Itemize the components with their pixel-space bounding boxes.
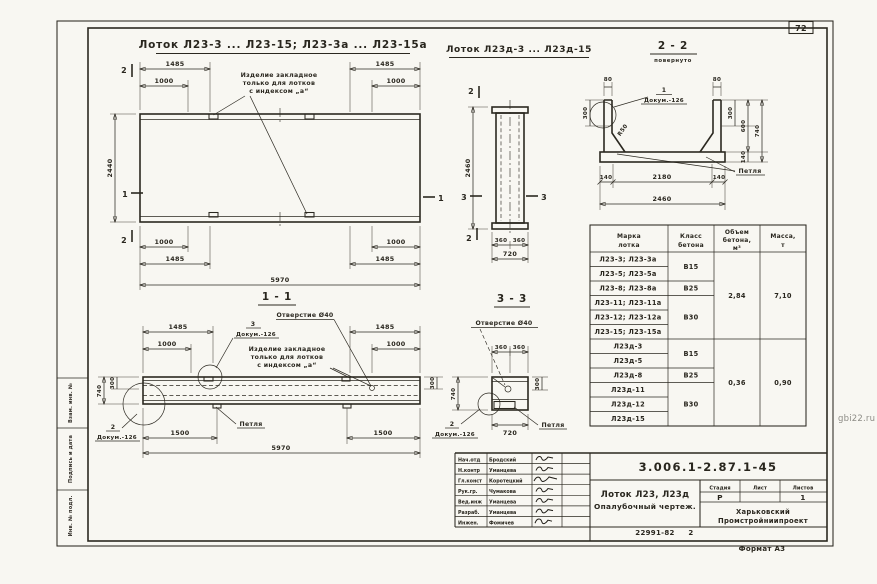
- table-class-cell: В15: [683, 350, 698, 358]
- dim-1000-br: 1000: [387, 238, 406, 246]
- dim-5970-plan: 5970: [271, 276, 290, 284]
- detail-callout-2-s11: 2: [111, 424, 116, 431]
- table-row-mark: Л23-12; Л23-12а: [594, 314, 661, 322]
- dim-300-s22-right: 300: [728, 107, 734, 120]
- sheets-count-value: 1: [800, 493, 805, 502]
- doc-title-line1: Лоток Л23, Л23д: [601, 490, 690, 500]
- section-3-3-title: 3 - 3: [497, 293, 527, 305]
- table-row-mark: Л23-5; Л23-5а: [599, 270, 656, 278]
- table-row-mark: Л23д-11: [611, 386, 645, 394]
- table-row-mark: Л23д-3: [613, 343, 642, 351]
- table-header-mass-1: Масса,: [770, 233, 795, 240]
- dim-1000-tl: 1000: [155, 77, 174, 85]
- dim-80-right: 80: [713, 77, 721, 83]
- petlya-label-s22: Петля: [739, 168, 762, 175]
- section-mark-2-end-bottom: 2: [466, 234, 472, 243]
- dim-360-s33-b: 360: [513, 345, 526, 351]
- dim-1000-tr: 1000: [387, 77, 406, 85]
- org-name-line1: Харьковский: [736, 508, 790, 516]
- dim-1500-l: 1500: [171, 429, 190, 437]
- petlya-label-s33: Петля: [542, 422, 565, 429]
- embed-note-line3: с индексом „а“: [249, 88, 308, 95]
- dim-2460-s22: 2460: [653, 195, 672, 203]
- table-row-mark: Л23-15; Л23-15а: [594, 328, 661, 336]
- dim-140-s22-br: 140: [713, 175, 726, 181]
- embed-note-s11-line2: только для лотков: [251, 354, 323, 361]
- table-mass-cell: 7,10: [774, 292, 792, 300]
- table-header-class-2: бетона: [678, 242, 704, 249]
- dim-1485-s11-r: 1485: [376, 323, 395, 331]
- signer-name: Фомичев: [489, 521, 514, 527]
- section-1-1-title: 1 - 1: [262, 291, 292, 303]
- dim-1500-r: 1500: [374, 429, 393, 437]
- doc-title-line2: Опалубочный чертеж.: [594, 502, 696, 511]
- page-number: 72: [795, 24, 807, 33]
- dim-360-a: 360: [495, 238, 508, 244]
- dim-2440: 2440: [106, 158, 114, 177]
- section-mark-2-bottom: 2: [121, 236, 127, 245]
- detail-2-doc-s33: Докум.-126: [435, 432, 475, 438]
- table-row-mark: Л23-3; Л23-3а: [599, 256, 656, 264]
- signer-name: Бродский: [489, 456, 516, 463]
- table-header-mark-1: Марка: [617, 233, 641, 240]
- table-header-mark-2: лотка: [618, 242, 640, 249]
- table-header-vol-3: м³: [733, 245, 741, 252]
- section-1-1: 1 - 1 Отверстие Ø40 3 Докум.-126 Изделие…: [95, 291, 443, 458]
- stage-label: Стадия: [709, 486, 730, 492]
- signer-name: Коротецкий: [489, 477, 523, 484]
- embed-note-line2: только для лотков: [243, 80, 315, 87]
- signer-role: Разраб.: [458, 509, 480, 516]
- dim-1485-s11-l: 1485: [169, 323, 188, 331]
- inventory-number: 22991-82: [635, 529, 674, 537]
- hole-label-s11: Отверстие Ø40: [276, 311, 333, 319]
- embed-note-s11-line3: с индексом „а“: [257, 362, 316, 369]
- table-header-vol-1: Объем: [725, 229, 749, 236]
- stage-value: Р: [717, 493, 723, 502]
- dim-1000-s11-r: 1000: [387, 340, 406, 348]
- dim-360-b: 360: [513, 238, 526, 244]
- table-row-mark: Л23д-15: [611, 415, 645, 423]
- signer-name: Уманцева: [489, 468, 516, 474]
- title-block: 3.006.1-2.87.1-45 Лоток Л23, Л23д Опалуб…: [455, 453, 827, 553]
- plan-d-title: Лоток Л23д-3 ... Л23д-15: [446, 45, 592, 55]
- dim-300-s11-r: 300: [430, 377, 436, 390]
- section-3-3: 3 - 3 Отверстие Ø40 360 360 740 300 720 …: [432, 293, 567, 438]
- table-volume-cell: 2,84: [728, 292, 746, 300]
- spec-table: Марка лотка Класс бетона Объем бетона, м…: [590, 225, 806, 426]
- table-header-mass-2: т: [781, 242, 785, 249]
- table-row-mark: Л23д-5: [613, 357, 642, 365]
- side-stamp: Взам. инв. № Подпись и дата Инв. № подл.: [68, 383, 74, 537]
- dim-740-s22: 740: [755, 125, 761, 138]
- embed-note-line1: Изделие закладное: [241, 72, 318, 79]
- section-mark-1-left: 1: [122, 190, 128, 199]
- section-2-2-subtitle: повернуто: [654, 58, 692, 64]
- dim-140-s22-v: 140: [741, 151, 747, 164]
- dim-1485-tr: 1485: [376, 60, 395, 68]
- fillet-radius-label: R50: [617, 123, 629, 137]
- signer-role: Рук.гр.: [458, 489, 478, 495]
- drawing-sheet: 72 Взам. инв. № Подпись и дата Инв. № по…: [0, 0, 877, 584]
- table-row-mark: Л23-11; Л23-11а: [594, 299, 661, 307]
- stamp-field-podpis: Подпись и дата: [68, 435, 74, 483]
- dim-2460-end: 2460: [464, 158, 472, 177]
- table-header-class-1: Класс: [680, 233, 702, 240]
- detail-callout-2-s33: 2: [450, 421, 455, 428]
- org-name-line2: Промстройниипроект: [718, 517, 808, 525]
- table-header-vol-2: бетона,: [723, 237, 751, 244]
- signer-name: Уманцева: [489, 500, 516, 506]
- section-mark-3-left: 3: [461, 193, 467, 202]
- petlya-label-s11: Петля: [240, 421, 263, 428]
- doc-code: 3.006.1-2.87.1-45: [639, 460, 778, 474]
- dim-2180-s22: 2180: [653, 173, 672, 181]
- detail-2-doc-s11: Докум.-126: [97, 435, 137, 441]
- dim-1485-bl: 1485: [166, 255, 185, 263]
- signer-role: Н.контр: [458, 468, 480, 474]
- section-mark-1-right: 1: [438, 194, 444, 203]
- dim-140-s22-bl: 140: [600, 175, 613, 181]
- plan-title: Лоток Л23-3 ... Л23-15; Л23-3а ... Л23-1…: [139, 39, 428, 51]
- table-class-cell: В25: [683, 285, 698, 293]
- section-2-2-title: 2 - 2: [658, 40, 688, 52]
- table-mass-cell: 0,90: [774, 379, 792, 387]
- section-mark-2-end-top: 2: [468, 87, 474, 96]
- signer-role: Нач.отд: [458, 457, 480, 463]
- signer-role: Вед.инж: [458, 500, 482, 506]
- table-class-cell: В25: [683, 372, 698, 380]
- end-view: Лоток Л23д-3 ... Л23д-15 2460 360 360 72…: [446, 45, 592, 263]
- inventory-sheet: 2: [688, 529, 693, 537]
- dim-300-s33: 300: [535, 378, 541, 391]
- dim-1485-tl: 1485: [166, 60, 185, 68]
- dim-80-left: 80: [604, 77, 612, 83]
- sheets-label: Листов: [793, 486, 814, 492]
- format-note: Формат А3: [739, 545, 786, 553]
- detail-1-doc: Докум.-126: [644, 98, 684, 104]
- signer-role: Гл.конст: [458, 478, 482, 484]
- section-mark-2-top: 2: [121, 66, 127, 75]
- dim-1485-br: 1485: [376, 255, 395, 263]
- dim-5970-s11: 5970: [272, 444, 291, 452]
- dim-300-s22-left: 300: [583, 107, 589, 120]
- table-volume-cell: 0,36: [728, 379, 746, 387]
- watermark: gbi22.ru: [838, 414, 875, 424]
- signer-name: Чумакова: [489, 489, 516, 495]
- table-row-mark: Л23д-8: [613, 372, 642, 380]
- embed-note-s11-line1: Изделие закладное: [249, 346, 326, 353]
- table-row-mark: Л23-8; Л23-8а: [599, 285, 656, 293]
- dim-1000-bl: 1000: [155, 238, 174, 246]
- detail-3-doc: Докум.-126: [236, 332, 276, 338]
- hole-label-s33: Отверстие Ø40: [475, 319, 532, 327]
- table-class-cell: В30: [683, 314, 698, 322]
- stamp-field-inv: Инв. № подл.: [68, 495, 74, 536]
- dim-720-s33: 720: [503, 429, 517, 437]
- dim-600-s22: 600: [741, 120, 747, 133]
- dim-720-end: 720: [503, 250, 517, 258]
- detail-callout-3: 3: [251, 321, 256, 328]
- signer-name: Уманцева: [489, 510, 516, 516]
- dim-300-s11-l: 300: [110, 377, 116, 390]
- dim-740-s11: 740: [97, 385, 103, 398]
- plan-view: Лоток Л23-3 ... Л23-15; Л23-3а ... Л23-1…: [106, 39, 444, 290]
- table-class-cell: В15: [683, 263, 698, 271]
- stamp-field-vzam: Взам. инв. №: [68, 383, 74, 423]
- signer-role: Инжен.: [458, 521, 479, 527]
- section-2-2: 2 - 2 повернуто 1 Докум.-126 R50 80 80 3…: [583, 40, 768, 210]
- sheet-label: Лист: [753, 486, 767, 492]
- detail-callout-1: 1: [662, 87, 667, 94]
- dim-360-s33-a: 360: [495, 345, 508, 351]
- drawing-canvas: 72 Взам. инв. № Подпись и дата Инв. № по…: [0, 0, 877, 584]
- table-row-mark: Л23д-12: [611, 401, 645, 409]
- dim-740-s33: 740: [451, 388, 457, 401]
- section-mark-3-right: 3: [541, 193, 547, 202]
- table-class-cell: В30: [683, 401, 698, 409]
- dim-1000-s11-l: 1000: [158, 340, 177, 348]
